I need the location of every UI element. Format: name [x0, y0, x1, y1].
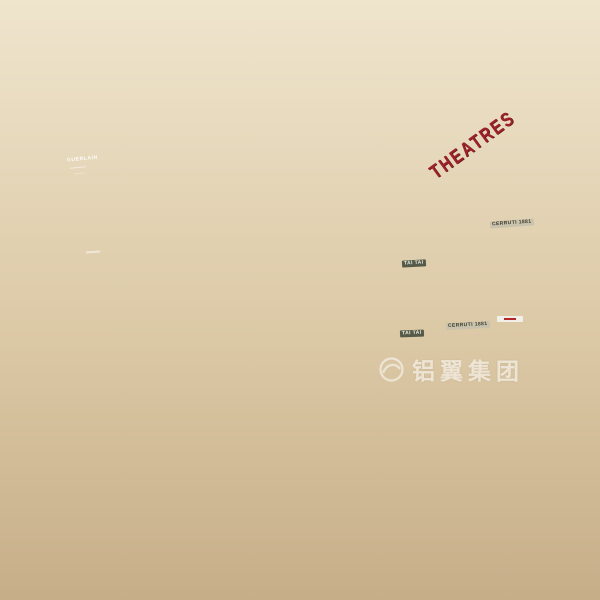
ground-floor — [0, 0, 600, 600]
mall-atrium-rendering: THEATRES TAI TAI TAI TAI CERRUTI 1881 CE… — [0, 0, 600, 600]
atrium-artwork — [0, 0, 600, 600]
